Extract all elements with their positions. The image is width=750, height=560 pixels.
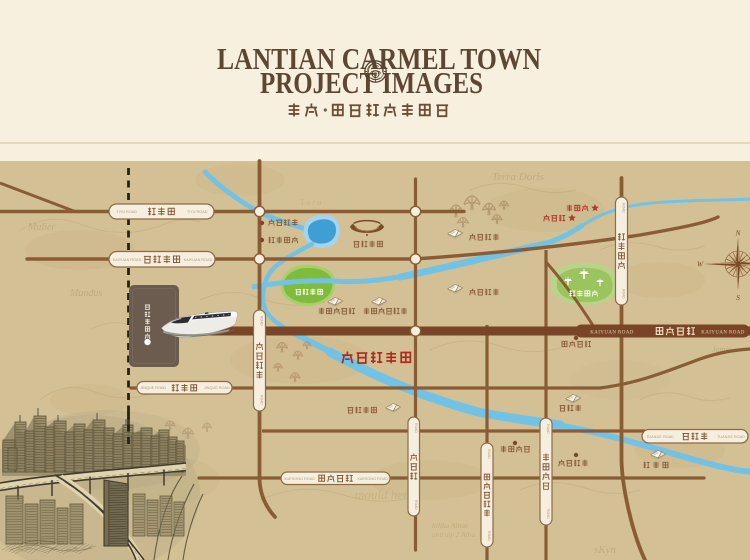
svg-text:ROAD: ROAD <box>546 509 550 519</box>
svg-text:Terra Doris: Terra Doris <box>492 171 544 183</box>
svg-text:TUANJIE ROAD: TUANJIE ROAD <box>717 435 745 439</box>
svg-text:KAIYUAN ROAD: KAIYUAN ROAD <box>590 331 634 336</box>
svg-text:T o r a: T o r a <box>300 198 321 207</box>
svg-text:XUESONG ROAD: XUESONG ROAD <box>357 477 388 481</box>
svg-text:JINQUE ROAD: JINQUE ROAD <box>204 386 230 390</box>
svg-text:ROAD: ROAD <box>260 316 264 326</box>
svg-text:KAIYUAN ROAD: KAIYUAN ROAD <box>701 331 745 336</box>
svg-text:XUESONG ROAD: XUESONG ROAD <box>284 477 315 481</box>
svg-text:ROAD: ROAD <box>487 531 491 541</box>
svg-text:sKyn: sKyn <box>594 544 617 556</box>
svg-text:untruly 2 Alba: untruly 2 Alba <box>432 530 475 539</box>
svg-text:Mulier: Mulier <box>27 222 55 233</box>
svg-text:W: W <box>697 260 704 269</box>
svg-text:hilika Albae: hilika Albae <box>432 521 469 530</box>
svg-text:KAIYUAN ROAD: KAIYUAN ROAD <box>184 258 213 262</box>
svg-text:ROAD: ROAD <box>487 449 491 459</box>
svg-text:TIYU ROAD: TIYU ROAD <box>116 210 137 214</box>
svg-text:ROAD: ROAD <box>414 500 418 510</box>
svg-text:N: N <box>734 229 741 238</box>
svg-text:JINQUE ROAD: JINQUE ROAD <box>140 386 166 390</box>
svg-text:ROAD: ROAD <box>414 423 418 433</box>
svg-text:S: S <box>736 293 740 302</box>
svg-text:ROAD: ROAD <box>622 203 626 213</box>
svg-text:ROAD: ROAD <box>546 424 550 434</box>
svg-text:TIYU ROAD: TIYU ROAD <box>187 210 208 214</box>
svg-text:KAIYUAN ROAD: KAIYUAN ROAD <box>113 258 142 262</box>
svg-text:Mundus: Mundus <box>69 288 102 299</box>
svg-text:ROAD: ROAD <box>260 395 264 405</box>
svg-text:ROAD: ROAD <box>622 289 626 299</box>
svg-text:TUANJIE ROAD: TUANJIE ROAD <box>646 435 674 439</box>
